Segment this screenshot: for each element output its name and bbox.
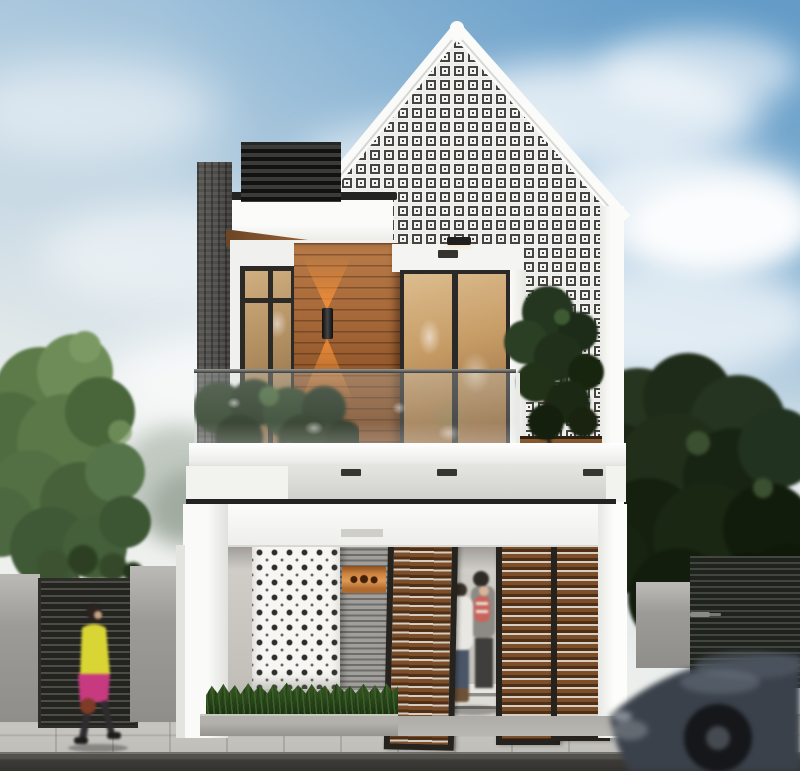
cloud	[630, 180, 800, 270]
slab-right-face	[606, 466, 626, 502]
portal-beam	[183, 504, 627, 547]
entry-apron-shadow	[398, 716, 628, 736]
wall-sconce	[322, 308, 333, 339]
house-number-plaque	[342, 566, 386, 593]
slab-left-face	[186, 466, 288, 502]
roof-slat-box	[241, 142, 341, 202]
left-boundary-wall	[0, 574, 40, 722]
fascia-vent	[437, 469, 457, 476]
door-transom-panel	[392, 244, 524, 272]
soffit-downlight	[447, 237, 471, 245]
walking-pedestrian	[62, 598, 142, 753]
window-transom-bar	[240, 298, 296, 303]
car-wheel	[684, 704, 752, 771]
transom-vent	[438, 250, 458, 258]
beam-vent	[341, 529, 383, 537]
house-exterior-scene	[0, 0, 800, 771]
gate-greenery-blobs	[37, 545, 143, 582]
planter-curb	[200, 714, 398, 736]
plaque-marks	[346, 570, 382, 589]
perforated-dot-panel	[252, 545, 340, 689]
fascia-vent	[341, 469, 361, 476]
house-left-edge	[176, 545, 185, 738]
cloud	[600, 30, 800, 110]
passing-car	[600, 620, 800, 771]
fence-latch	[690, 612, 710, 617]
pedestrian-figure	[68, 604, 128, 752]
fascia-vent	[583, 469, 603, 476]
